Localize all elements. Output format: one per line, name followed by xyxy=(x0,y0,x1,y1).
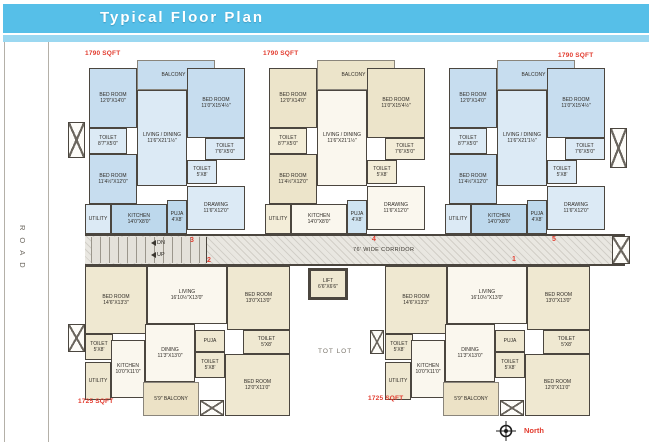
unit-number-2: 2 xyxy=(207,257,211,264)
shaft-hatch xyxy=(610,128,627,168)
shaft-hatch xyxy=(68,122,85,158)
unit-3: BALCONY 7' BED ROOM12'0"X14'0" TOILET8'7… xyxy=(85,60,245,234)
room-bedroom-3: BED ROOM11'4½"X12'0" xyxy=(89,154,137,204)
room-toilet-1: TOILET8'7"X5'0" xyxy=(89,128,127,154)
sqft-label-unit-5: 1790 SQFT xyxy=(558,52,593,59)
room-bedroom-1: BED ROOM14'6"X13'3" xyxy=(385,266,447,334)
room-toilet-1: TOILET8'7"X5'0" xyxy=(449,128,487,154)
room-drawing: DRAWING11'6"X12'0" xyxy=(187,186,245,230)
room-toilet-3: TOILET5'X8' xyxy=(195,352,225,378)
room-utility: UTILITY xyxy=(265,204,291,234)
unit-4: BALCONY 7' BED ROOM12'0"X14'0" TOILET8'7… xyxy=(265,60,425,234)
room-living-dining: LIVING / DINING11'6"X21'1½" xyxy=(497,90,547,186)
room-puja: PUJA xyxy=(495,330,525,352)
corridor: DN UP 76' WIDE CORRIDOR xyxy=(85,234,625,266)
room-dining: DINING11'3"X13'0" xyxy=(145,324,195,382)
room-puja: PUJA4'X8' xyxy=(347,200,367,234)
room-bedroom-2: BED ROOM13'0"X13'0" xyxy=(527,266,590,330)
room-bedroom-3: BED ROOM11'4½"X12'0" xyxy=(269,154,317,204)
room-living: LIVING16'10½"X13'0" xyxy=(147,266,227,324)
shaft-hatch xyxy=(200,400,224,416)
room-drawing: DRAWING11'6"X12'0" xyxy=(367,186,425,230)
shaft-hatch xyxy=(68,324,85,352)
room-toilet-2: TOILET5'X8' xyxy=(543,330,590,354)
compass-icon xyxy=(496,421,516,442)
room-bedroom-1: BED ROOM12'0"X14'0" xyxy=(449,68,497,128)
room-bedroom-1: BED ROOM14'6"X13'3" xyxy=(85,266,147,334)
unit-number-5: 5 xyxy=(552,236,556,243)
room-toilet-3: TOILET5'X8' xyxy=(367,160,397,184)
room-puja: PUJA4'X8' xyxy=(167,200,187,234)
shaft-hatch xyxy=(612,236,630,264)
room-toilet-1: TOILET5'X8' xyxy=(85,334,113,360)
header-underline xyxy=(3,35,649,42)
left-arrow-icon xyxy=(151,252,156,258)
room-bedroom-2: BED ROOM13'0"X13'0" xyxy=(227,266,290,330)
unit-number-3: 3 xyxy=(190,237,194,244)
room-bedroom-1: BED ROOM12'0"X14'0" xyxy=(89,68,137,128)
room-toilet-3: TOILET5'X8' xyxy=(495,352,525,378)
shaft-hatch xyxy=(500,400,524,416)
room-kitchen: KITCHEN10'0"X11'0" xyxy=(411,340,445,398)
room-utility: UTILITY xyxy=(85,362,111,400)
room-drawing: DRAWING11'6"X12'0" xyxy=(547,186,605,230)
room-kitchen: KITCHEN10'0"X11'0" xyxy=(111,340,145,398)
lift: LIFT 6'6"X6'6" xyxy=(308,268,348,300)
unit-2: BED ROOM14'6"X13'3" LIVING16'10½"X13'0" … xyxy=(85,266,290,420)
room-toilet-2: TOILET7'6"X5'0" xyxy=(205,138,245,160)
left-arrow-icon xyxy=(151,240,156,246)
room-kitchen: KITCHEN14'0"X8'0" xyxy=(291,204,347,234)
room-toilet-1: TOILET8'7"X5'0" xyxy=(269,128,307,154)
shaft-hatch xyxy=(370,330,384,354)
stairs-down: DN xyxy=(151,240,165,246)
room-toilet-3: TOILET5'X8' xyxy=(547,160,577,184)
north-label: North xyxy=(524,426,544,435)
lift-dims: 6'6"X6'6" xyxy=(318,284,338,290)
room-toilet-2: TOILET5'X8' xyxy=(243,330,290,354)
room-bedroom-2: BED ROOM11'0"X15'4½" xyxy=(547,68,605,138)
room-kitchen: KITCHEN14'0"X8'0" xyxy=(471,204,527,234)
room-balcony: 5'9" BALCONY xyxy=(443,382,499,416)
sqft-label-unit-1: 1725 SQFT xyxy=(368,395,403,402)
room-balcony: 5'9" BALCONY xyxy=(143,382,199,416)
room-bedroom-3: BED ROOM12'0"X11'0" xyxy=(525,354,590,416)
unit-5: BALCONY 7' BED ROOM12'0"X14'0" TOILET8'7… xyxy=(445,60,605,234)
road-label: ROAD xyxy=(18,225,27,275)
room-bedroom-3: BED ROOM11'4½"X12'0" xyxy=(449,154,497,204)
room-bedroom-2: BED ROOM11'0"X15'4½" xyxy=(187,68,245,138)
room-living-dining: LIVING / DINING11'6"X21'1½" xyxy=(137,90,187,186)
room-living: LIVING16'10½"X13'0" xyxy=(447,266,527,324)
room-bedroom-3: BED ROOM12'0"X11'0" xyxy=(225,354,290,416)
room-puja: PUJA xyxy=(195,330,225,352)
page-title: Typical Floor Plan xyxy=(100,9,264,26)
sqft-label-unit-4: 1790 SQFT xyxy=(263,50,298,57)
room-toilet-2: TOILET7'6"X5'0" xyxy=(385,138,425,160)
room-toilet-1: TOILET5'X8' xyxy=(385,334,413,360)
room-bedroom-2: BED ROOM11'0"X15'4½" xyxy=(367,68,425,138)
room-toilet-2: TOILET7'6"X5'0" xyxy=(565,138,605,160)
floor-plan-page: Typical Floor Plan ROAD BALCONY 7' BED R… xyxy=(0,0,649,442)
room-living-dining: LIVING / DINING11'6"X21'1½" xyxy=(317,90,367,186)
corridor-label: 76' WIDE CORRIDOR xyxy=(353,247,414,253)
room-utility: UTILITY xyxy=(445,204,471,234)
road-strip-left-border xyxy=(4,42,5,442)
room-kitchen: KITCHEN14'0"X8'0" xyxy=(111,204,167,234)
room-puja: PUJA4'X8' xyxy=(527,200,547,234)
room-utility: UTILITY xyxy=(85,204,111,234)
room-toilet-3: TOILET5'X8' xyxy=(187,160,217,184)
sqft-label-unit-2: 1725 SQFT xyxy=(78,398,113,405)
tot-lot-label: TOT LOT xyxy=(318,348,352,355)
unit-number-4: 4 xyxy=(372,236,376,243)
unit-number-1: 1 xyxy=(512,256,516,263)
unit-1: BED ROOM14'6"X13'3" LIVING16'10½"X13'0" … xyxy=(385,266,590,420)
sqft-label-unit-3: 1790 SQFT xyxy=(85,50,120,57)
room-dining: DINING11'3"X13'0" xyxy=(445,324,495,382)
road-strip-right-border xyxy=(48,42,49,442)
room-bedroom-1: BED ROOM12'0"X14'0" xyxy=(269,68,317,128)
stairs-up: UP xyxy=(151,252,165,258)
